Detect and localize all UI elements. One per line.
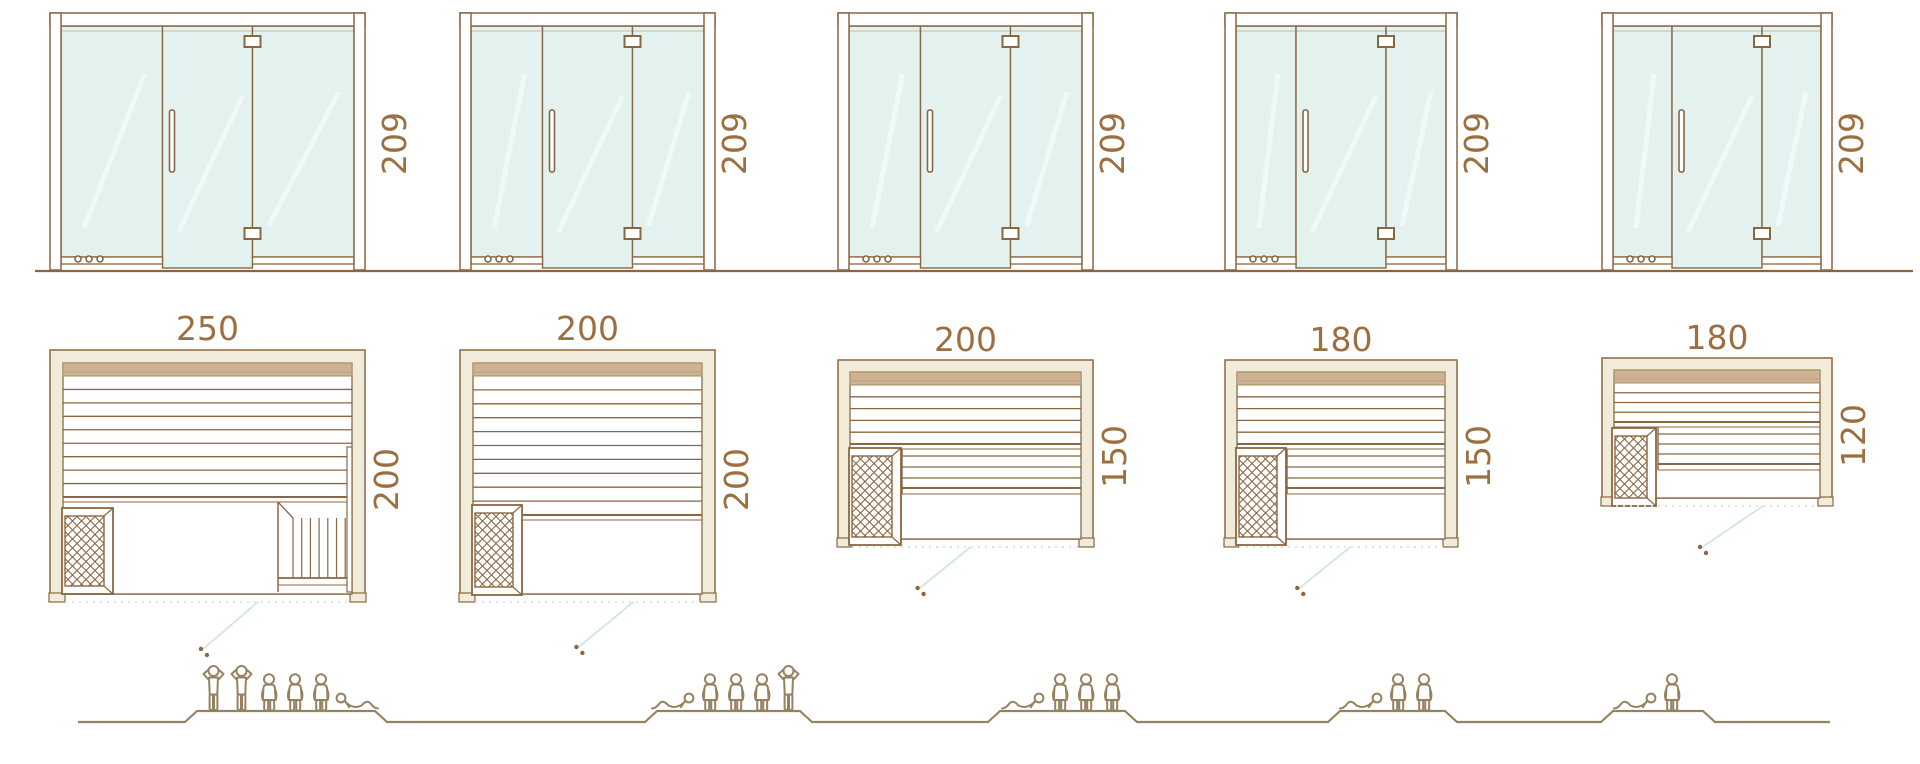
left-post xyxy=(838,13,849,270)
door-handle-dot xyxy=(205,653,209,657)
door-hinge-icon xyxy=(1003,36,1019,47)
door-handle-dot xyxy=(574,645,578,649)
left-post xyxy=(460,13,471,270)
door-hinge-icon xyxy=(1754,228,1770,239)
control-dots-icon xyxy=(86,256,92,262)
heater-icon xyxy=(1612,428,1656,506)
door-handle-dot xyxy=(580,651,584,655)
sauna-front-elevation xyxy=(1602,13,1832,270)
capacity-figures xyxy=(652,666,799,711)
sauna-floor-plan xyxy=(49,350,366,657)
glass-door xyxy=(163,26,253,268)
control-dots-icon xyxy=(1250,256,1256,262)
control-dots-icon xyxy=(97,256,103,262)
glass-panel xyxy=(471,26,543,257)
glass-panel xyxy=(1613,26,1672,257)
heater-icon xyxy=(849,448,901,545)
top-beam xyxy=(460,13,715,26)
width-dimension-label: 200 xyxy=(838,323,1093,356)
door-hinge-icon xyxy=(245,36,261,47)
control-dots-icon xyxy=(863,256,869,262)
heater-icon xyxy=(472,505,522,595)
sauna-front-elevation xyxy=(50,13,365,270)
door-hinge-icon xyxy=(625,228,641,239)
sauna-front-elevation xyxy=(1225,13,1457,270)
glass-panel xyxy=(1386,26,1446,257)
door-handle-icon xyxy=(1303,110,1308,172)
capacity-figures xyxy=(1614,674,1679,710)
backrest-band xyxy=(473,363,702,376)
height-dimension-label: 209 xyxy=(1835,112,1868,175)
door-handle-dot xyxy=(199,647,203,651)
door-hinge-icon xyxy=(1378,36,1394,47)
capacity-figures xyxy=(1340,674,1431,710)
glass-panel xyxy=(1011,26,1083,257)
door-swing xyxy=(1701,506,1763,548)
door-handle-dot xyxy=(1704,551,1708,555)
control-dots-icon xyxy=(874,256,880,262)
height-dimension-label: 209 xyxy=(1460,112,1493,175)
glass-panel xyxy=(1236,26,1296,257)
door-handle-icon xyxy=(550,110,555,172)
width-dimension-label: 200 xyxy=(460,312,715,345)
door-hinge-icon xyxy=(625,36,641,47)
right-post xyxy=(704,13,715,270)
control-dots-icon xyxy=(496,256,502,262)
width-dimension-label: 180 xyxy=(1602,321,1832,354)
door-hinge-icon xyxy=(245,228,261,239)
left-post xyxy=(50,13,61,270)
right-post xyxy=(1821,13,1832,270)
depth-dimension-label: 200 xyxy=(370,448,403,511)
door-handle-dot xyxy=(921,592,925,596)
depth-dimension-label: 120 xyxy=(1837,404,1870,467)
sauna-floor-plan xyxy=(1601,358,1833,555)
diagram-canvas xyxy=(0,0,1920,764)
door-swing xyxy=(202,602,258,650)
door-handle-icon xyxy=(928,110,933,172)
door-hinge-icon xyxy=(1003,228,1019,239)
door-handle-dot xyxy=(915,586,919,590)
glass-door xyxy=(1296,26,1386,268)
top-beam xyxy=(50,13,365,26)
sauna-floor-plan xyxy=(1224,360,1458,596)
depth-dimension-label: 200 xyxy=(720,448,753,511)
top-beam xyxy=(1225,13,1457,26)
right-post xyxy=(1082,13,1093,270)
control-dots-icon xyxy=(75,256,81,262)
top-beam xyxy=(1602,13,1832,26)
door-swing xyxy=(919,547,971,589)
door-handle-icon xyxy=(1679,110,1684,172)
sauna-size-diagram: 209 209 209 209 209 250 200 200 180 180 … xyxy=(0,0,1920,764)
glass-panel xyxy=(1762,26,1821,257)
sauna-floor-plan xyxy=(837,360,1094,596)
right-post xyxy=(354,13,365,270)
door-handle-dot xyxy=(1295,586,1299,590)
backrest-band xyxy=(63,363,352,376)
ground-line xyxy=(78,711,1830,722)
heater-icon xyxy=(1236,448,1286,545)
glass-door xyxy=(1672,26,1762,268)
height-dimension-label: 209 xyxy=(1096,112,1129,175)
glass-panel xyxy=(61,26,163,257)
sauna-floor-plan xyxy=(459,350,716,655)
door-swing xyxy=(577,602,633,648)
glass-door xyxy=(921,26,1011,268)
control-dots-icon xyxy=(1272,256,1278,262)
depth-dimension-label: 150 xyxy=(1462,425,1495,488)
height-dimension-label: 209 xyxy=(718,112,751,175)
control-dots-icon xyxy=(1627,256,1633,262)
top-beam xyxy=(838,13,1093,26)
door-handle-dot xyxy=(1698,545,1702,549)
door-handle-icon xyxy=(170,110,175,172)
glass-door xyxy=(543,26,633,268)
height-dimension-label: 209 xyxy=(378,112,411,175)
door-hinge-icon xyxy=(1378,228,1394,239)
door-hinge-icon xyxy=(1754,36,1770,47)
control-dots-icon xyxy=(1649,256,1655,262)
control-dots-icon xyxy=(485,256,491,262)
control-dots-icon xyxy=(885,256,891,262)
backrest-band xyxy=(850,372,1081,385)
glass-panel xyxy=(849,26,921,257)
control-dots-icon xyxy=(507,256,513,262)
depth-dimension-label: 150 xyxy=(1098,425,1131,488)
capacity-figures xyxy=(204,666,379,711)
door-swing xyxy=(1298,547,1350,589)
left-post xyxy=(1602,13,1613,270)
control-dots-icon xyxy=(1261,256,1267,262)
sauna-front-elevation xyxy=(838,13,1093,270)
capacity-figures xyxy=(1002,674,1119,710)
backrest-band xyxy=(1237,372,1445,385)
sauna-front-elevation xyxy=(460,13,715,270)
control-dots-icon xyxy=(1638,256,1644,262)
glass-panel xyxy=(633,26,705,257)
backrest-band xyxy=(1614,370,1820,383)
heater-icon xyxy=(62,508,113,594)
left-post xyxy=(1225,13,1236,270)
right-post xyxy=(1446,13,1457,270)
width-dimension-label: 250 xyxy=(50,312,365,345)
door-handle-dot xyxy=(1301,592,1305,596)
width-dimension-label: 180 xyxy=(1225,323,1457,356)
